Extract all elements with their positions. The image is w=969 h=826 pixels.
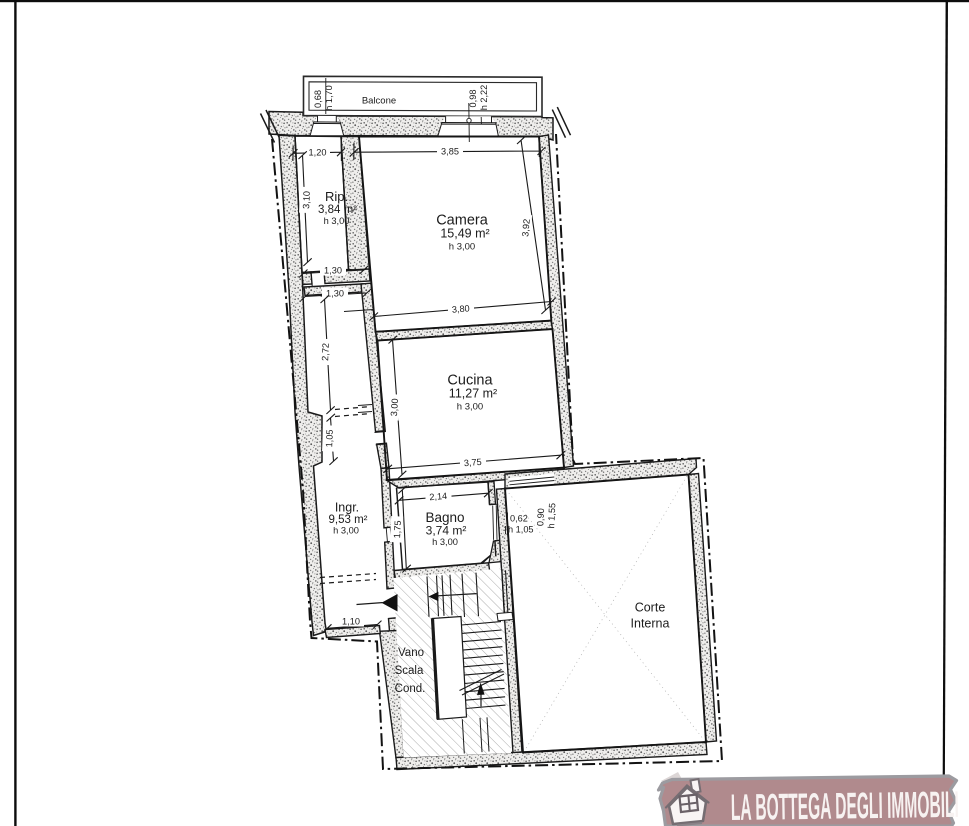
svg-text:h 3,00: h 3,00 xyxy=(324,216,350,226)
svg-text:15,49 m²: 15,49 m² xyxy=(440,227,489,241)
svg-text:3,74 m²: 3,74 m² xyxy=(426,524,467,538)
svg-text:3,85: 3,85 xyxy=(441,147,459,157)
svg-text:1,30: 1,30 xyxy=(326,289,344,299)
svg-text:1,30: 1,30 xyxy=(324,266,342,276)
svg-text:h 1,70: h 1,70 xyxy=(324,85,334,111)
svg-text:Rip.: Rip. xyxy=(325,189,348,204)
svg-text:Interna: Interna xyxy=(631,617,670,631)
svg-text:h 2,22: h 2,22 xyxy=(479,85,489,111)
svg-text:h 3,00: h 3,00 xyxy=(333,526,359,536)
svg-text:11,27 m²: 11,27 m² xyxy=(449,387,497,401)
svg-text:9,53 m²: 9,53 m² xyxy=(329,514,368,526)
svg-text:0,98: 0,98 xyxy=(468,90,478,108)
svg-text:Balcone: Balcone xyxy=(362,96,396,107)
svg-text:h 3,00: h 3,00 xyxy=(449,242,475,253)
svg-text:3,10: 3,10 xyxy=(301,191,312,209)
svg-text:3,84 m²: 3,84 m² xyxy=(318,204,357,216)
svg-text:h 3,00: h 3,00 xyxy=(457,402,483,413)
svg-text:2,72: 2,72 xyxy=(320,343,331,361)
svg-text:LA BOTTEGA DEGLI IMMOBILI: LA BOTTEGA DEGLI IMMOBILI xyxy=(731,784,960,826)
svg-text:0,68: 0,68 xyxy=(313,90,323,108)
svg-text:3,80: 3,80 xyxy=(451,303,470,314)
svg-text:h 1,55: h 1,55 xyxy=(546,503,557,529)
svg-text:1,10: 1,10 xyxy=(342,617,360,627)
svg-text:Ingr.: Ingr. xyxy=(335,501,359,515)
svg-text:0,62: 0,62 xyxy=(510,514,528,524)
svg-text:0,90: 0,90 xyxy=(535,508,546,526)
svg-text:Corte: Corte xyxy=(635,601,666,615)
svg-text:Vano: Vano xyxy=(398,647,424,659)
svg-text:1,75: 1,75 xyxy=(392,520,403,538)
svg-text:Scala: Scala xyxy=(395,665,424,677)
svg-text:2,14: 2,14 xyxy=(429,491,448,502)
svg-text:3,00: 3,00 xyxy=(389,398,400,417)
svg-text:h 1,05: h 1,05 xyxy=(508,525,534,535)
svg-text:1,05: 1,05 xyxy=(324,429,335,447)
svg-text:3,92: 3,92 xyxy=(520,218,532,237)
svg-text:Cond.: Cond. xyxy=(395,683,426,695)
svg-text:1,20: 1,20 xyxy=(309,148,327,158)
svg-text:3,75: 3,75 xyxy=(463,457,482,468)
svg-text:h 3,00: h 3,00 xyxy=(432,537,458,547)
